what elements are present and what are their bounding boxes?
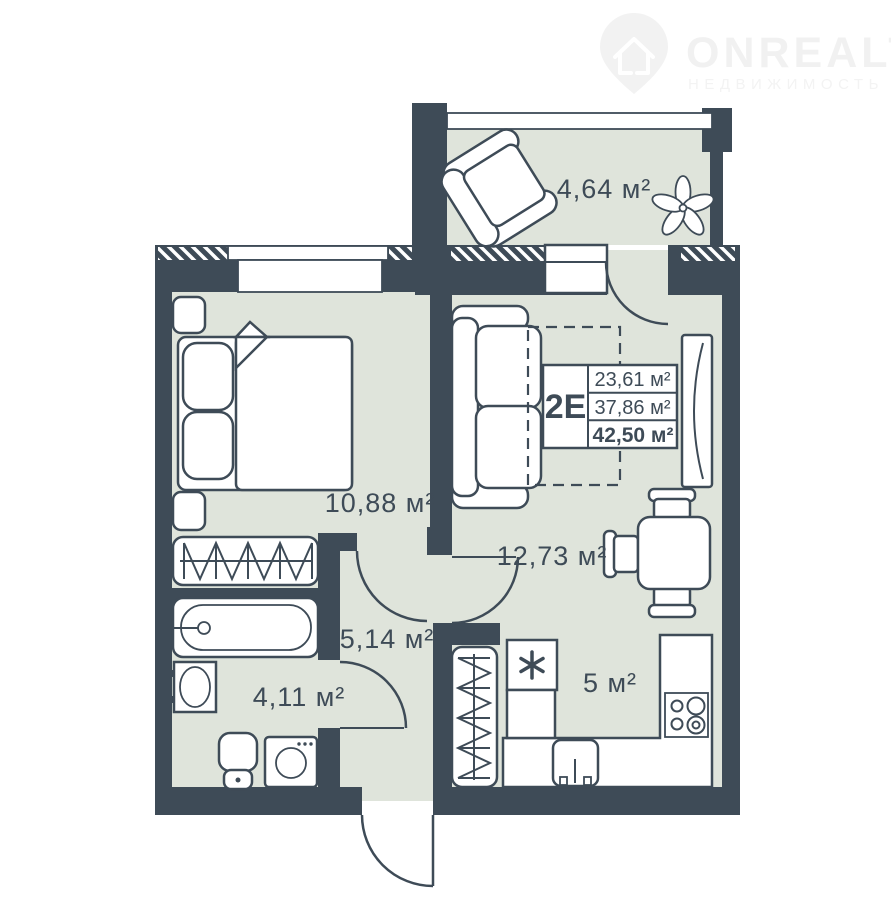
wardrobe xyxy=(682,335,712,487)
logo-brand-text: ONREALT xyxy=(686,29,891,77)
map-pin-icon xyxy=(600,13,668,94)
wall-stub-bedroom-door xyxy=(427,527,452,555)
entry-threshold xyxy=(362,787,433,801)
kitchen-sink xyxy=(553,740,598,786)
onrealt-logo: ONREALT НЕДВИЖИМОСТЬ xyxy=(600,13,891,94)
entry-door-arc xyxy=(362,815,433,886)
wall-kitchen-stub xyxy=(433,623,500,645)
nightstand xyxy=(173,297,205,333)
bed xyxy=(178,322,352,490)
floor-plan: ONREALT НЕДВИЖИМОСТЬ xyxy=(0,0,891,910)
wall-hall-left-lower xyxy=(318,728,340,787)
wall-bottom-left xyxy=(155,787,362,815)
living-area-value: 23,61 м² xyxy=(594,369,670,391)
window-hatch-balcony-left xyxy=(450,246,545,262)
floor-plan-page: ONREALT НЕДВИЖИМОСТЬ xyxy=(0,0,891,910)
wall-bottom-right xyxy=(433,787,740,815)
hallway-area-label: 5,14 м² xyxy=(340,624,435,654)
nightstand xyxy=(173,492,205,530)
bedroom-window-sill xyxy=(238,260,382,292)
washing-machine xyxy=(265,737,317,787)
bedroom-window xyxy=(228,246,388,260)
dining-table xyxy=(638,517,710,589)
wall-right xyxy=(722,245,740,815)
wall-left xyxy=(155,245,172,815)
closet-hangers xyxy=(173,537,318,585)
chair xyxy=(614,536,638,572)
total-area-value: 42,50 м² xyxy=(593,424,674,447)
balcony-area-label: 4,64 м² xyxy=(557,174,652,204)
wall-balcony-left xyxy=(412,103,447,245)
window-hatch-balcony-right xyxy=(680,246,736,262)
pillow xyxy=(183,343,233,410)
apartment-area-value: 37,86 м² xyxy=(594,397,670,419)
bedroom-area-label: 10,88 м² xyxy=(325,488,436,518)
stove xyxy=(665,693,708,737)
chair xyxy=(649,605,695,617)
toilet xyxy=(219,733,257,789)
blanket xyxy=(236,337,352,490)
bathroom-area-label: 4,11 м² xyxy=(253,682,346,712)
wall-balcony-right xyxy=(710,129,723,245)
kitchen-area-label: 5 м² xyxy=(583,668,637,698)
logo-subtitle-text: НЕДВИЖИМОСТЬ xyxy=(688,76,884,93)
unit-label: 2Е xyxy=(545,388,587,426)
balcony-glazing xyxy=(447,113,712,129)
tall-closet-hangers xyxy=(452,647,497,787)
window-hatch-bedroom-right xyxy=(388,246,413,261)
pillow xyxy=(183,412,233,479)
window-hatch-bedroom-left xyxy=(157,246,230,261)
balcony-door-panel xyxy=(545,245,607,293)
kitchen-cabinet xyxy=(507,690,555,738)
living-room-area-label: 12,73 м² xyxy=(497,541,608,571)
fridge xyxy=(507,640,557,690)
bathtub xyxy=(164,598,318,657)
wall-hall-right xyxy=(433,645,452,787)
unit-info-card: 2Е 23,61 м² 37,86 м² 42,50 м² xyxy=(543,365,677,448)
